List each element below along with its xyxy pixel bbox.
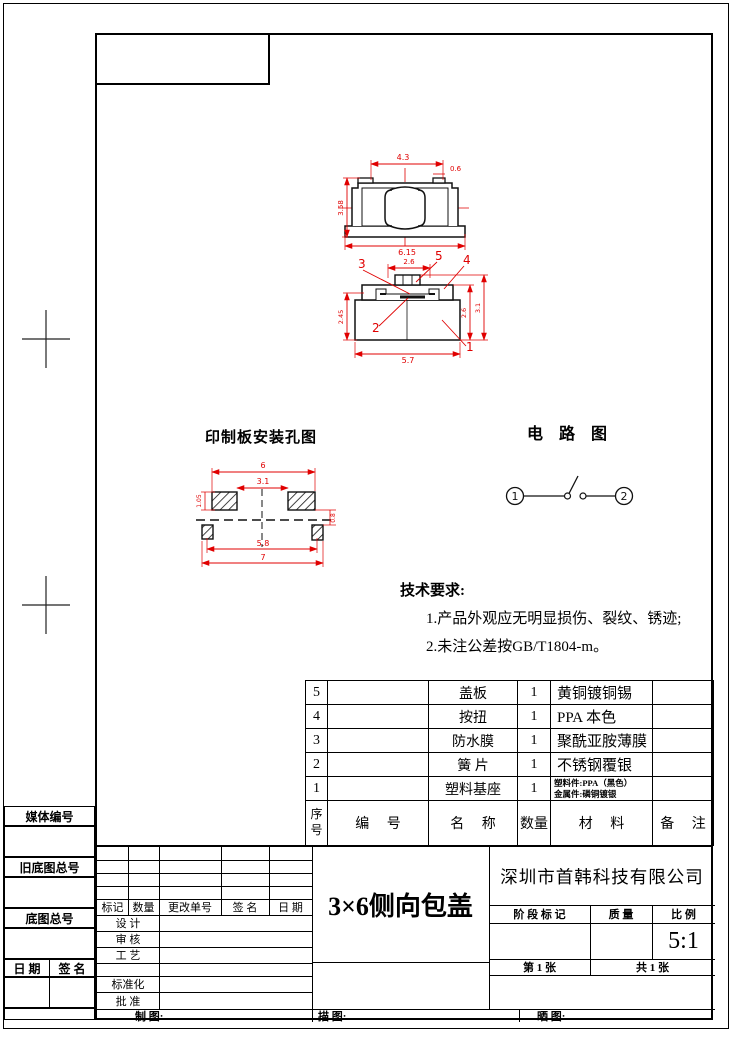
tech-req-title: 技术要求:: [400, 583, 690, 600]
bom-note: [653, 729, 713, 753]
sheets-total: 共 1 张: [590, 959, 715, 975]
top-view-drawing: 4.3 0.6 3.58 6.15: [300, 138, 490, 256]
dim-pad-height: 1.05: [196, 494, 203, 508]
bom-qty: 1: [518, 705, 551, 729]
dim-bottom: 5.7: [402, 356, 415, 365]
rev-header-sign: 签 名: [221, 899, 269, 915]
terminal-2: 2: [621, 490, 628, 503]
bom-material: 塑料件:PPA（黑色） 金属件:磷铜镀银: [551, 777, 653, 801]
terminal-1: 1: [512, 490, 519, 503]
bom-header-name: 名 称: [429, 801, 518, 845]
dim-top: 2.6: [403, 258, 415, 266]
bom-name: 塑料基座: [429, 777, 518, 801]
registration-mark: [22, 310, 70, 368]
title-block: 标记 数量 更改单号 签 名 日 期 设 计 审 核 工 艺 标准化 批 准 3…: [95, 845, 713, 1020]
master-number-label: 底图总号: [4, 908, 95, 928]
role-process: 工 艺: [97, 947, 159, 963]
draft-label: 制 图:: [97, 1009, 312, 1022]
pcb-diagram-title: 印制板安装孔图: [205, 430, 317, 447]
dim-tab: 0.6: [450, 165, 462, 173]
rev-header-qty: 数量: [128, 899, 159, 915]
bom-note: [653, 705, 713, 729]
rev-header-order: 更改单号: [159, 899, 221, 915]
stage-mark-label: 阶 段 标 记: [489, 905, 590, 923]
callout-3: 3: [358, 257, 366, 271]
bom-code: [328, 681, 429, 705]
bom-seq: 2: [306, 753, 328, 777]
dim-right-outer: 3.1: [474, 303, 482, 313]
bom-material: 黄铜镀铜锡: [551, 681, 653, 705]
registration-mark: [22, 576, 70, 634]
bom-note: [653, 753, 713, 777]
callout-2: 2: [372, 321, 380, 335]
callout-1: 1: [466, 340, 474, 354]
bom-material: 不锈钢覆银: [551, 753, 653, 777]
sign-box: [49, 977, 95, 1008]
old-master-number-box: [4, 877, 95, 908]
old-master-number-label: 旧底图总号: [4, 857, 95, 877]
dim-outer-top: 6: [260, 461, 265, 470]
master-number-box: [4, 928, 95, 959]
role-approve: 批 准: [97, 992, 159, 1009]
bom-name: 簧 片: [429, 753, 518, 777]
drawing-title: 3×6侧向包盖: [312, 847, 489, 962]
bom-material-line1: 塑料件:PPA（黑色）: [554, 778, 632, 789]
bom-table: 5 盖板 1 黄铜镀铜锡 4 按扭 1 PPA 本色 3 防水膜 1 聚酰亚胺薄…: [305, 680, 714, 846]
drawing-sheet: 4.3 0.6 3.58 6.15 2.6: [0, 0, 740, 1046]
bom-material: PPA 本色: [551, 705, 653, 729]
role-design: 设 计: [97, 915, 159, 931]
tech-requirements: 技术要求: 1.产品外观应无明显损伤、裂纹、锈迹; 2.未注公差按GB/T180…: [400, 583, 690, 656]
bom-name: 防水膜: [429, 729, 518, 753]
bom-qty: 1: [518, 753, 551, 777]
dim-top-width: 4.3: [397, 153, 410, 162]
callout-5: 5: [435, 249, 443, 263]
bom-code: [328, 753, 429, 777]
sign-label: 签 名: [49, 959, 95, 977]
scale-label: 比 例: [652, 905, 715, 923]
bom-header-seq: 序号: [306, 801, 328, 845]
print-label: 晒 图:: [519, 1009, 715, 1022]
quality-label: 质 量: [590, 905, 652, 923]
scale-value: 5:1: [652, 923, 715, 959]
bom-seq: 1: [306, 777, 328, 801]
section-view-drawing: 2.6 5.7 2.45 2.6 3.1 3 5 4 2 1: [330, 248, 505, 366]
rev-header-date: 日 期: [269, 899, 312, 915]
rev-header-mark: 标记: [97, 899, 128, 915]
bom-qty: 1: [518, 681, 551, 705]
dim-inner-bottom: 5.8: [257, 539, 270, 548]
bom-code: [328, 777, 429, 801]
sheet-number: 第 1 张: [489, 959, 590, 975]
role-standardize: 标准化: [97, 976, 159, 992]
bom-name: 按扭: [429, 705, 518, 729]
role-check: 审 核: [97, 931, 159, 947]
date-box: [4, 977, 50, 1008]
margin-strip: [4, 1008, 95, 1020]
bom-code: [328, 729, 429, 753]
bom-seq: 4: [306, 705, 328, 729]
callout-4: 4: [463, 253, 471, 267]
dim-right-inner: 2.6: [460, 308, 468, 318]
bom-name: 盖板: [429, 681, 518, 705]
dim-offset: 0.8: [330, 513, 337, 523]
company-name: 深圳市首韩科技有限公司: [489, 847, 715, 905]
bom-seq: 5: [306, 681, 328, 705]
circuit-title: 电 路 图: [527, 426, 613, 444]
media-number-box: [4, 826, 95, 857]
date-label: 日 期: [4, 959, 50, 977]
tech-req-line1: 1.产品外观应无明显损伤、裂纹、锈迹;: [426, 607, 690, 628]
circuit-diagram: 1 2: [495, 470, 655, 522]
dim-left: 2.45: [337, 310, 345, 324]
bom-note: [653, 681, 713, 705]
bom-header-qty: 数量: [518, 801, 551, 845]
trace-label: 描 图:: [312, 1009, 519, 1022]
bom-header-note: 备 注: [653, 801, 713, 845]
bom-qty: 1: [518, 729, 551, 753]
bom-note: [653, 777, 713, 801]
tech-req-line2: 2.未注公差按GB/T1804-m。: [426, 635, 690, 656]
bom-seq: 3: [306, 729, 328, 753]
pcb-hole-drawing: 6 3.1 1.05 0.8 5.8 7: [183, 453, 388, 578]
dim-outer-bottom: 7: [260, 553, 265, 562]
bom-material: 聚酰亚胺薄膜: [551, 729, 653, 753]
bom-code: [328, 705, 429, 729]
dim-height: 3.58: [337, 200, 345, 216]
top-left-block: [95, 33, 270, 85]
bom-material-line2: 金属件:磷铜镀银: [554, 789, 616, 800]
margin-block: 媒体编号 旧底图总号 底图总号 日 期 签 名: [4, 806, 95, 1020]
media-number-label: 媒体编号: [4, 806, 95, 826]
bom-header-code: 编 号: [328, 801, 429, 845]
bom-header-material: 材 料: [551, 801, 653, 845]
bom-qty: 1: [518, 777, 551, 801]
dim-inner-top: 3.1: [257, 477, 270, 486]
